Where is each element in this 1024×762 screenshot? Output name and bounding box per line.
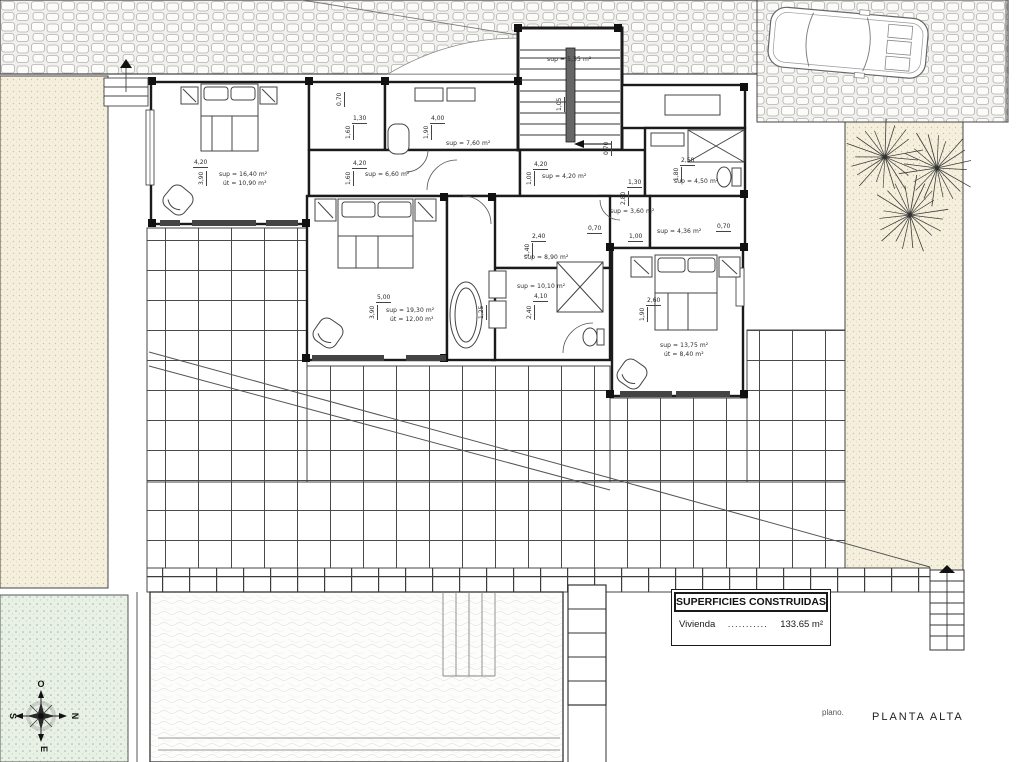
room-area-label: út = 10,90 m² <box>223 181 267 187</box>
dimension-label: 1,25 <box>479 305 487 320</box>
room-area-label: sup = 16,40 m² <box>219 172 267 178</box>
room-area-label: sup = 10,10 m² <box>517 284 565 290</box>
legend-row-label: Vivienda <box>679 619 715 630</box>
dimension-label: 1,30 <box>627 180 642 188</box>
room-area-label: sup = 13,75 m² <box>660 343 708 349</box>
dimension-label: 1,60 <box>346 171 354 186</box>
car-mirror <box>854 72 864 78</box>
compass-letter-south: S <box>8 713 18 719</box>
dimension-label: 1,30 <box>352 116 367 124</box>
room-area-label: sup = 4,20 m² <box>542 174 586 180</box>
wardrobe-unit <box>489 301 506 328</box>
dimension-label: 3,90 <box>199 171 207 186</box>
room-area-label: sup = 4,36 m² <box>657 229 701 235</box>
dimension-label: 2,40 <box>531 234 546 242</box>
legend-row-dots: ........... <box>719 619 776 630</box>
dimension-label: 3,90 <box>370 305 378 320</box>
floor-plan-drawing: O N E S <box>0 0 1024 762</box>
shower-2 <box>688 130 744 162</box>
compass-letter-north: N <box>70 713 80 720</box>
room-area-label: sup = 5,55 m² <box>547 57 591 63</box>
dimension-label: 5,00 <box>376 295 391 303</box>
dimension-label: 4,00 <box>430 116 445 124</box>
vanity <box>651 133 684 146</box>
legend-header: SUPERFICIES CONSTRUIDAS <box>674 592 828 612</box>
toilet-2 <box>717 167 741 187</box>
washbasin <box>415 88 443 101</box>
compass-letter-west: O <box>37 679 44 689</box>
legend-box: SUPERFICIES CONSTRUIDAS Vivienda .......… <box>671 589 831 646</box>
exterior-stairs-right <box>930 565 964 650</box>
wardrobe-unit <box>489 271 506 298</box>
dimension-label: 1,90 <box>424 125 432 140</box>
dimension-label: 0,70 <box>337 92 345 107</box>
dimension-label: 1,60 <box>346 125 354 140</box>
grass-area <box>0 595 128 762</box>
room-area-label: sup = 4,50 m² <box>674 179 718 185</box>
dimension-label: 4,20 <box>533 162 548 170</box>
dimension-label: 4,20 <box>193 160 208 168</box>
room-area-label: sup = 19,30 m² <box>386 308 434 314</box>
room-area-label: sup = 3,60 m² <box>610 209 654 215</box>
room-area-label: sup = 7,60 m² <box>446 141 490 147</box>
washbasin <box>447 88 475 101</box>
plan-title: PLANTA ALTA <box>872 711 964 723</box>
dimension-label: 4,20 <box>352 161 367 169</box>
plano-label: plano. <box>822 708 844 717</box>
legend-row: Vivienda ........... 133.65 m² <box>674 619 828 630</box>
room-area-label: út = 8,40 m² <box>664 352 704 358</box>
toilet-main <box>583 328 604 346</box>
dimension-label: 2,60 <box>646 298 661 306</box>
room-hall <box>309 150 520 196</box>
dimension-label: 1,00 <box>628 234 643 242</box>
dimension-label: 1,90 <box>640 307 648 322</box>
pool <box>137 585 606 762</box>
counter-top <box>665 95 720 115</box>
floor-plan-canvas: O N E S 4,203,900,701,301,604,001,904,20… <box>0 0 1024 762</box>
dimension-label: 0,70 <box>604 141 612 156</box>
room-bath-3 <box>650 196 745 248</box>
dimension-label: 0,70 <box>716 224 731 232</box>
compass-letter-east: E <box>39 746 49 752</box>
dimension-label: 4,10 <box>533 294 548 302</box>
room-area-label: sup = 8,90 m² <box>524 255 568 261</box>
bathtub-small <box>388 124 409 154</box>
dimension-label: 2,50 <box>680 158 695 166</box>
room-area-label: sup = 6,60 m² <box>365 172 409 178</box>
dimension-label: 1,00 <box>527 171 535 186</box>
dimension-label: 2,40 <box>527 305 535 320</box>
room-area-label: út = 12,00 m² <box>390 317 434 323</box>
dimension-label: 1,05 <box>557 97 565 112</box>
pool-side-steps <box>568 585 606 762</box>
dimension-label: 2,80 <box>621 191 629 206</box>
legend-row-value: 133.65 m² <box>780 619 823 630</box>
garden-left <box>0 76 108 588</box>
garden-right <box>845 122 963 570</box>
dimension-label: 0,70 <box>587 226 602 234</box>
car-mirror <box>860 10 870 16</box>
